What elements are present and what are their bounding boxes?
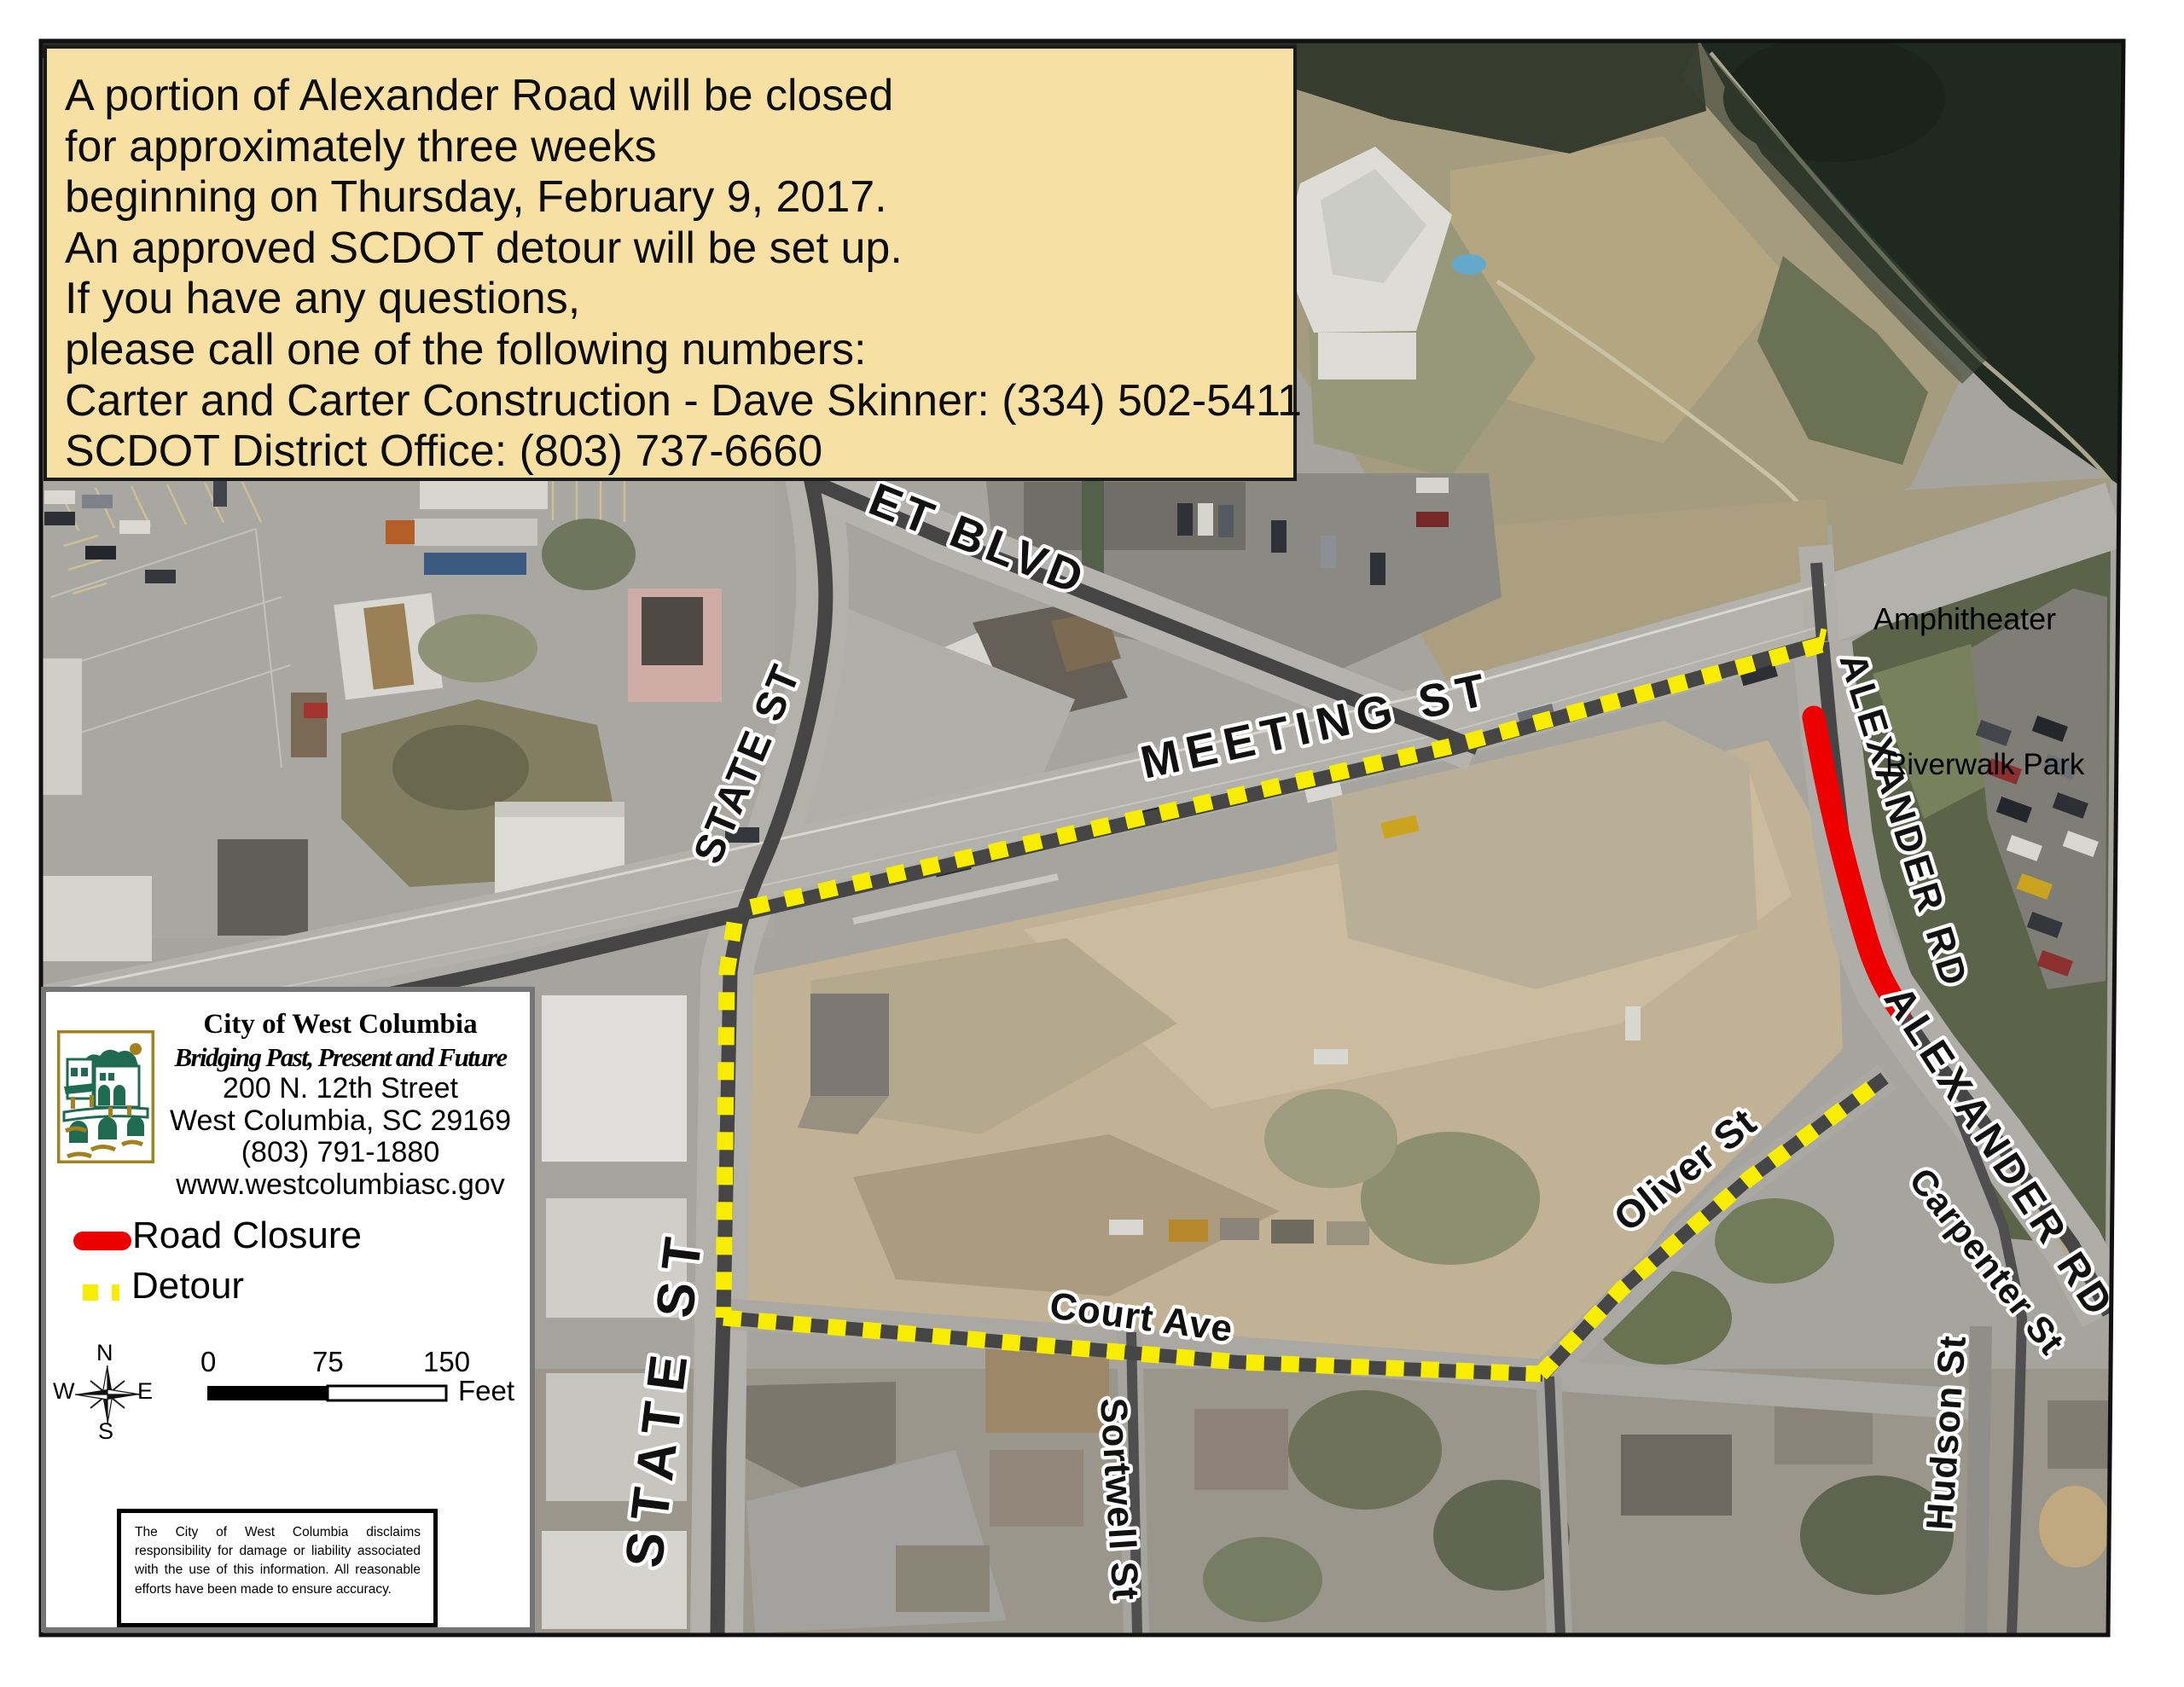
svg-text:Feet: Feet — [458, 1375, 514, 1406]
svg-text:150: 150 — [423, 1348, 470, 1377]
svg-text:0: 0 — [200, 1348, 216, 1377]
svg-text:Amphitheater: Amphitheater — [1873, 601, 2056, 636]
svg-text:Riverwalk Park: Riverwalk Park — [1885, 748, 2085, 781]
svg-text:75: 75 — [312, 1348, 344, 1377]
